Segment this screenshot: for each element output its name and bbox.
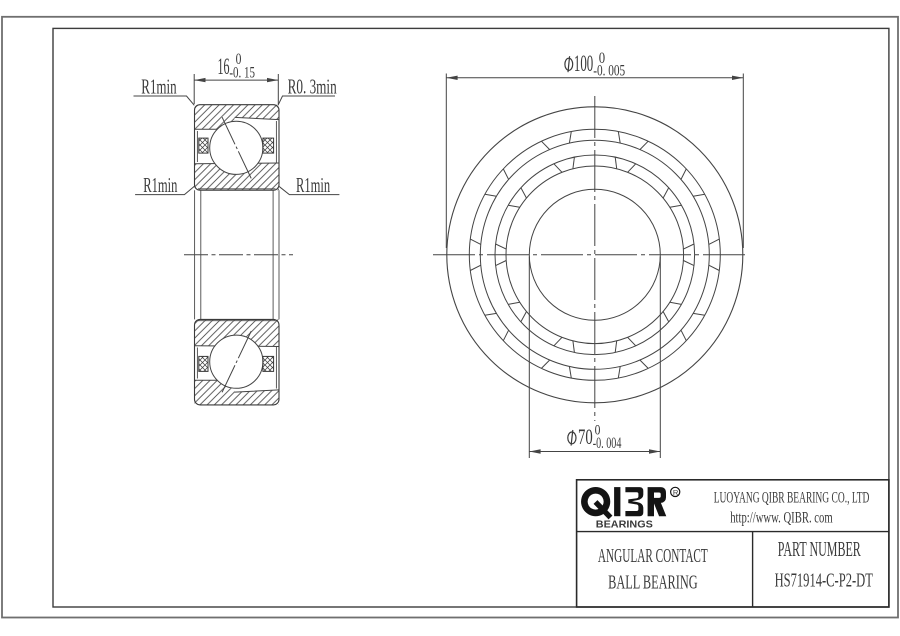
svg-text:-0. 15: -0. 15 [229, 65, 255, 82]
svg-text:R0. 3min: R0. 3min [288, 75, 337, 99]
svg-text:R1min: R1min [143, 173, 177, 197]
svg-text:-0. 005: -0. 005 [593, 62, 625, 79]
svg-text:R1min: R1min [296, 173, 330, 197]
svg-text:BALL BEARING: BALL BEARING [608, 572, 698, 594]
svg-text:R1min: R1min [141, 75, 177, 99]
svg-text:LUOYANG QIBR BEARING CO., LTD: LUOYANG QIBR BEARING CO., LTD [714, 489, 870, 506]
svg-text:16: 16 [218, 54, 230, 79]
svg-text:ANGULAR CONTACT: ANGULAR CONTACT [598, 545, 708, 567]
svg-text:-0. 004: -0. 004 [593, 435, 622, 452]
svg-text:http://www. QIBR. com: http://www. QIBR. com [730, 510, 833, 527]
svg-text:100: 100 [574, 51, 593, 76]
svg-text:R: R [673, 488, 679, 497]
svg-text:70: 70 [578, 424, 593, 449]
svg-text:PART NUMBER: PART NUMBER [778, 537, 861, 561]
svg-text:BEARINGS: BEARINGS [596, 519, 654, 530]
svg-text:HS71914-C-P2-DT: HS71914-C-P2-DT [775, 569, 873, 591]
